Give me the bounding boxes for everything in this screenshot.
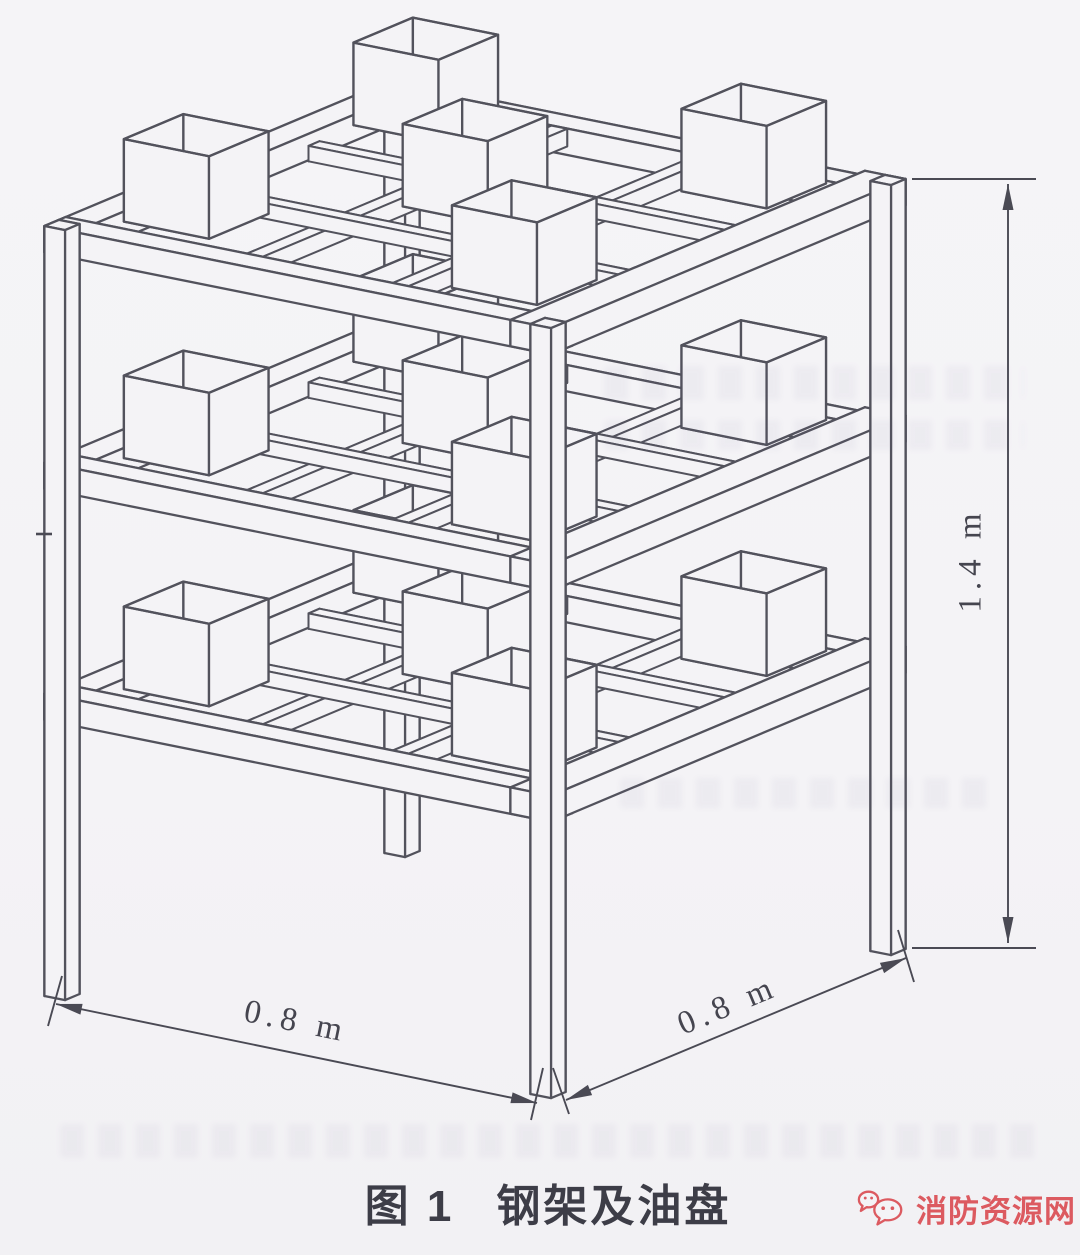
figure-number: 图 1 (365, 1182, 455, 1231)
post-left (44, 220, 79, 1000)
oil-pan (124, 114, 269, 239)
post-front (530, 318, 565, 1098)
oil-pan (124, 351, 269, 476)
watermark-text: 消防资源网 (916, 1186, 1076, 1231)
watermark: 消防资源网 (856, 1186, 1076, 1231)
oil-pan (682, 320, 827, 445)
tier-1 (44, 18, 905, 355)
steel-frame-isometric-drawing (0, 0, 1080, 1255)
dimension-label-height: 1.4 m (953, 507, 990, 612)
dimension-width-left (48, 976, 543, 1120)
oil-pan (124, 582, 269, 707)
oil-pan (452, 180, 597, 305)
figure-title: 钢架及油盘 (496, 1182, 731, 1231)
figure-caption: 图 1钢架及油盘 (365, 1170, 732, 1234)
oil-pan (682, 84, 827, 209)
post-right (870, 175, 905, 955)
oil-pan (452, 648, 597, 773)
chat-bubbles-icon (856, 1187, 908, 1231)
scanned-page: 0.8 m 0.8 m 1.4 m 图 1钢架及油盘 消防资源网 (0, 0, 1080, 1255)
oil-pan (452, 417, 597, 542)
oil-pan (682, 551, 827, 676)
